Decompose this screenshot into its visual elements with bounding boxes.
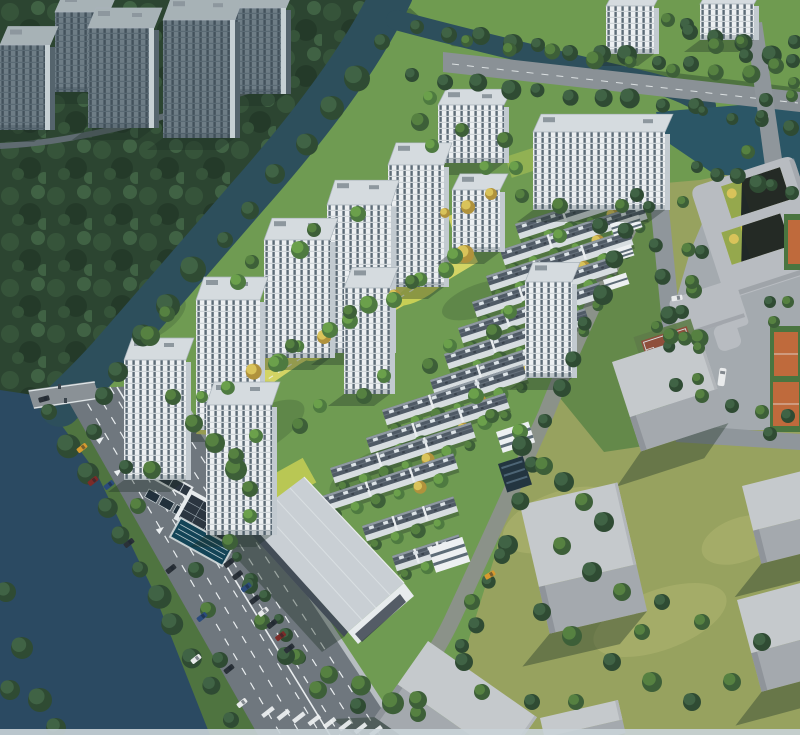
- tree-crown: [682, 24, 693, 35]
- tree-crown: [615, 199, 624, 208]
- tree-crown: [656, 99, 665, 108]
- tree-crown: [405, 275, 414, 284]
- roof-unit: [543, 117, 555, 122]
- tree-crown: [438, 75, 449, 86]
- tree-crown: [503, 43, 512, 52]
- tree-crown: [695, 389, 704, 398]
- tree-crown: [360, 296, 372, 308]
- tree-crown: [206, 433, 219, 446]
- tower-facade: [163, 20, 235, 138]
- roof-unit: [482, 94, 492, 98]
- tree-crown: [383, 693, 398, 708]
- tree-crown: [479, 161, 488, 170]
- tree-crown: [604, 653, 616, 665]
- tree-crown: [144, 461, 156, 473]
- tree-crown: [494, 548, 505, 559]
- tree-crown: [474, 684, 485, 695]
- tree-crown: [130, 498, 141, 509]
- facade-accent-strip: [149, 28, 154, 128]
- tree-crown: [485, 409, 494, 418]
- tree-crown: [203, 677, 215, 689]
- tree-crown: [643, 672, 656, 685]
- tree-crown: [503, 305, 512, 314]
- tree-crown: [441, 27, 452, 38]
- tree-crown: [768, 58, 779, 69]
- tree-crown: [310, 681, 322, 693]
- tree-crown: [343, 305, 352, 314]
- tree-crown: [228, 448, 239, 459]
- tree-crown: [667, 64, 676, 73]
- tree-crown: [562, 45, 573, 56]
- tree-crown: [266, 164, 279, 177]
- tree-crown: [159, 306, 170, 317]
- tower-side: [286, 10, 291, 94]
- tree-crown: [57, 435, 73, 451]
- tower-base: [163, 133, 235, 138]
- roof-unit: [164, 343, 174, 347]
- tree-crown: [678, 332, 687, 341]
- tree-crown: [736, 36, 744, 44]
- tree-crown: [249, 429, 258, 438]
- tree-crown: [663, 329, 674, 340]
- roof-unit: [65, 0, 77, 2]
- roof-unit: [643, 119, 653, 123]
- tree-crown: [545, 44, 556, 55]
- tree-crown: [682, 243, 691, 252]
- tree-crown: [98, 498, 111, 511]
- tree-crown: [386, 292, 397, 303]
- tree-crown: [782, 296, 790, 304]
- tree-crown: [595, 89, 607, 101]
- tower-base: [0, 125, 50, 130]
- tree-crown: [630, 188, 639, 197]
- tree-crown: [321, 666, 333, 678]
- tree-crown: [377, 369, 386, 378]
- tower-side: [154, 30, 159, 128]
- tree-crown: [313, 399, 322, 408]
- tree-crown: [212, 652, 223, 663]
- tree-crown: [685, 275, 694, 284]
- tree-crown: [563, 626, 576, 639]
- tree-crown: [725, 399, 734, 408]
- tree-crown: [109, 362, 122, 375]
- tree-crown: [661, 307, 673, 319]
- tree-crown: [756, 110, 764, 118]
- tree-crown: [223, 712, 234, 723]
- tree-crown: [439, 263, 450, 274]
- tree-crown: [243, 509, 252, 518]
- tree-crown: [322, 322, 333, 333]
- tree-crown: [568, 694, 579, 705]
- tree-crown: [356, 388, 367, 399]
- tree-crown: [595, 512, 608, 525]
- scene-svg: [0, 0, 800, 735]
- tree-crown: [285, 339, 294, 348]
- tree-crown: [512, 493, 524, 505]
- tree-crown: [132, 562, 143, 573]
- tree-crown: [683, 56, 694, 67]
- tree-crown: [461, 35, 469, 43]
- tree-crown: [555, 472, 568, 485]
- tree-crown: [350, 698, 361, 709]
- tree-crown: [410, 20, 419, 29]
- tree-crown: [473, 27, 485, 39]
- tree-crown: [461, 200, 470, 209]
- tree-crown: [470, 74, 482, 86]
- tower-facade: [533, 132, 665, 210]
- tree-crown: [181, 257, 198, 274]
- tree-crown: [188, 562, 199, 573]
- tree-crown: [217, 232, 228, 243]
- tree-crown: [447, 248, 458, 259]
- tree-crown: [497, 132, 508, 143]
- tower-shadow: [517, 210, 665, 222]
- tree-crown: [350, 206, 361, 217]
- tree-crown: [405, 68, 414, 77]
- tower-roof: [0, 27, 58, 46]
- tree-crown: [486, 324, 497, 335]
- tree-crown: [443, 339, 452, 348]
- roof-unit: [173, 1, 185, 6]
- tower-side: [330, 242, 335, 358]
- tree-crown: [741, 145, 750, 154]
- tree-crown: [692, 373, 700, 381]
- tree-crown: [583, 562, 596, 575]
- tree-crown: [12, 637, 27, 652]
- context-tower: [0, 27, 58, 143]
- tree-crown: [739, 49, 748, 58]
- tree-crown: [41, 404, 52, 415]
- tree-crown: [764, 296, 772, 304]
- tree-crown: [455, 639, 464, 648]
- tree-crown: [711, 168, 720, 177]
- tree-crown: [618, 223, 629, 234]
- tree-crown: [464, 594, 475, 605]
- tree-crown: [654, 594, 665, 605]
- tree-crown: [727, 113, 735, 121]
- tree-crown: [162, 614, 177, 629]
- tree-crown: [788, 35, 797, 44]
- roof-unit: [10, 30, 22, 35]
- facade-accent-strip: [281, 8, 286, 94]
- tower-side: [654, 8, 659, 54]
- tree-crown: [245, 255, 254, 264]
- tree-crown: [783, 120, 794, 131]
- tree-crown: [538, 414, 547, 423]
- tower-roof: [525, 262, 580, 282]
- gate-post: [58, 384, 61, 389]
- tree-crown: [563, 90, 574, 101]
- tree-crown: [755, 405, 764, 414]
- tree-crown: [763, 427, 772, 436]
- tree-crown: [78, 463, 93, 478]
- tree-crown: [221, 381, 230, 390]
- tree-crown: [693, 342, 701, 350]
- tree-crown: [677, 196, 685, 204]
- roof-unit: [213, 3, 223, 7]
- tree-crown: [750, 175, 762, 187]
- tree-crown: [554, 379, 566, 391]
- tower-base: [206, 530, 272, 535]
- tree-crown: [649, 239, 658, 248]
- tree-crown: [698, 106, 705, 113]
- tree-crown: [297, 134, 312, 149]
- tree-crown: [695, 245, 704, 254]
- tree-crown: [96, 387, 108, 399]
- tree-crown: [552, 198, 563, 209]
- tree-crown: [781, 409, 790, 418]
- tree-crown: [655, 269, 666, 280]
- facade-accent-strip: [45, 45, 50, 130]
- tree-crown: [1, 680, 14, 693]
- tree-crown: [119, 460, 128, 469]
- tree-crown: [614, 583, 626, 595]
- tree-crown: [352, 676, 365, 689]
- tree-crown: [222, 534, 233, 545]
- tree-crown: [29, 688, 45, 704]
- tower-side: [500, 192, 505, 252]
- roof-unit: [354, 270, 366, 275]
- tower-base: [438, 158, 504, 163]
- tree-crown: [469, 618, 480, 629]
- tower-roof: [452, 174, 508, 190]
- roof-unit: [535, 265, 547, 270]
- tree-crown: [423, 91, 432, 100]
- tree-crown: [694, 614, 705, 625]
- tree-crown: [675, 305, 684, 314]
- tower-side: [272, 407, 277, 535]
- tree-crown: [374, 34, 385, 45]
- tree-crown: [502, 80, 515, 93]
- tree-crown: [455, 123, 464, 132]
- tree-crown: [246, 364, 257, 375]
- tree-crown: [534, 603, 546, 615]
- tree-crown: [691, 161, 699, 169]
- tree-crown: [509, 161, 518, 170]
- roof-unit: [132, 13, 142, 17]
- tree-crown: [625, 56, 633, 64]
- roof-unit: [369, 185, 379, 189]
- tree-crown: [730, 168, 741, 179]
- tree-crown: [513, 436, 526, 449]
- tree-crown: [766, 179, 774, 187]
- tower-roof: [606, 0, 662, 6]
- tree-crown: [643, 201, 651, 209]
- tree-crown: [688, 98, 699, 109]
- tree-crown: [768, 316, 776, 324]
- tree-crown: [268, 356, 279, 367]
- tree-crown: [743, 66, 755, 78]
- tree-crown: [525, 457, 536, 468]
- tree-crown: [661, 13, 670, 22]
- tree-crown: [412, 113, 424, 125]
- tree-crown: [242, 481, 253, 492]
- tree-crown: [141, 326, 154, 339]
- roof-unit: [274, 221, 286, 226]
- tree-crown: [708, 38, 719, 49]
- roof-unit: [206, 280, 218, 285]
- tree-crown: [708, 65, 719, 76]
- tree-crown: [724, 673, 736, 685]
- tree-crown: [531, 84, 540, 93]
- tree-crown: [762, 46, 775, 59]
- tree-crown: [553, 229, 562, 238]
- tower-facade: [0, 45, 50, 130]
- tower-side: [235, 22, 240, 138]
- tree-crown: [652, 56, 661, 65]
- tower-roof: [700, 0, 762, 4]
- tree-crown: [576, 493, 588, 505]
- tree-crown: [440, 208, 447, 215]
- tree-crown: [230, 274, 241, 285]
- roof-unit: [250, 387, 260, 391]
- tree-crown: [566, 352, 577, 363]
- tower-roof: [344, 267, 398, 288]
- tree-crown: [499, 535, 512, 548]
- tree-crown: [425, 139, 434, 148]
- tree-crown: [669, 378, 678, 387]
- tree-crown: [536, 457, 548, 469]
- roof-unit: [98, 11, 110, 16]
- tree-crown: [165, 389, 176, 400]
- tree-crown: [485, 188, 493, 196]
- gate-post: [64, 398, 67, 403]
- tower-facade: [88, 28, 154, 128]
- tree-crown: [606, 251, 618, 263]
- tree-crown: [524, 694, 535, 705]
- tree-crown: [112, 527, 124, 539]
- tree-crown: [321, 96, 337, 112]
- tree-crown: [786, 90, 794, 98]
- tree-crown: [292, 241, 304, 253]
- roof-unit: [337, 183, 349, 188]
- tree-crown: [410, 691, 422, 703]
- aerial-render-image: [0, 0, 800, 735]
- roof-unit: [448, 92, 460, 97]
- tree-crown: [788, 77, 796, 85]
- tree-crown: [345, 66, 362, 83]
- roof-unit: [462, 177, 474, 182]
- tree-crown: [594, 285, 607, 298]
- tree-crown: [786, 54, 795, 63]
- tree-crown: [422, 358, 433, 369]
- tree-crown: [200, 602, 211, 613]
- tree-crown: [531, 38, 540, 47]
- tree-crown: [634, 624, 645, 635]
- tree-crown: [186, 415, 198, 427]
- tower-side: [665, 134, 670, 210]
- tower-roof: [388, 143, 452, 165]
- facade-accent-strip: [230, 20, 235, 138]
- tree-crown: [785, 186, 794, 195]
- tennis-court: [788, 220, 800, 264]
- tower-base: [525, 373, 572, 378]
- tower-side: [754, 6, 759, 40]
- tree-crown: [515, 189, 524, 198]
- tree-crown: [754, 633, 766, 645]
- tree-crown: [232, 552, 239, 559]
- tree-crown: [592, 218, 603, 229]
- tower-base: [88, 123, 154, 128]
- tree-crown: [691, 330, 703, 342]
- tree-crown: [148, 585, 164, 601]
- tree-crown: [292, 418, 303, 429]
- tree-crown: [242, 202, 254, 214]
- image-edge-strip: [0, 729, 800, 735]
- tree-crown: [307, 223, 316, 232]
- tree-crown: [684, 693, 696, 705]
- tree-crown: [86, 424, 97, 435]
- tree-crown: [759, 93, 768, 102]
- tree-crown: [468, 388, 479, 399]
- roof-unit: [398, 146, 410, 151]
- tree-crown: [651, 321, 659, 329]
- tree-crown: [578, 317, 587, 326]
- tower-facade: [525, 282, 572, 378]
- tree-crown: [554, 537, 566, 549]
- tree-crown: [586, 52, 598, 64]
- tree-crown: [620, 89, 633, 102]
- tree-crown: [456, 653, 468, 665]
- tree-crown: [196, 391, 204, 399]
- tower-side: [50, 47, 55, 130]
- tree-crown: [512, 424, 523, 435]
- tree-crown: [259, 590, 267, 598]
